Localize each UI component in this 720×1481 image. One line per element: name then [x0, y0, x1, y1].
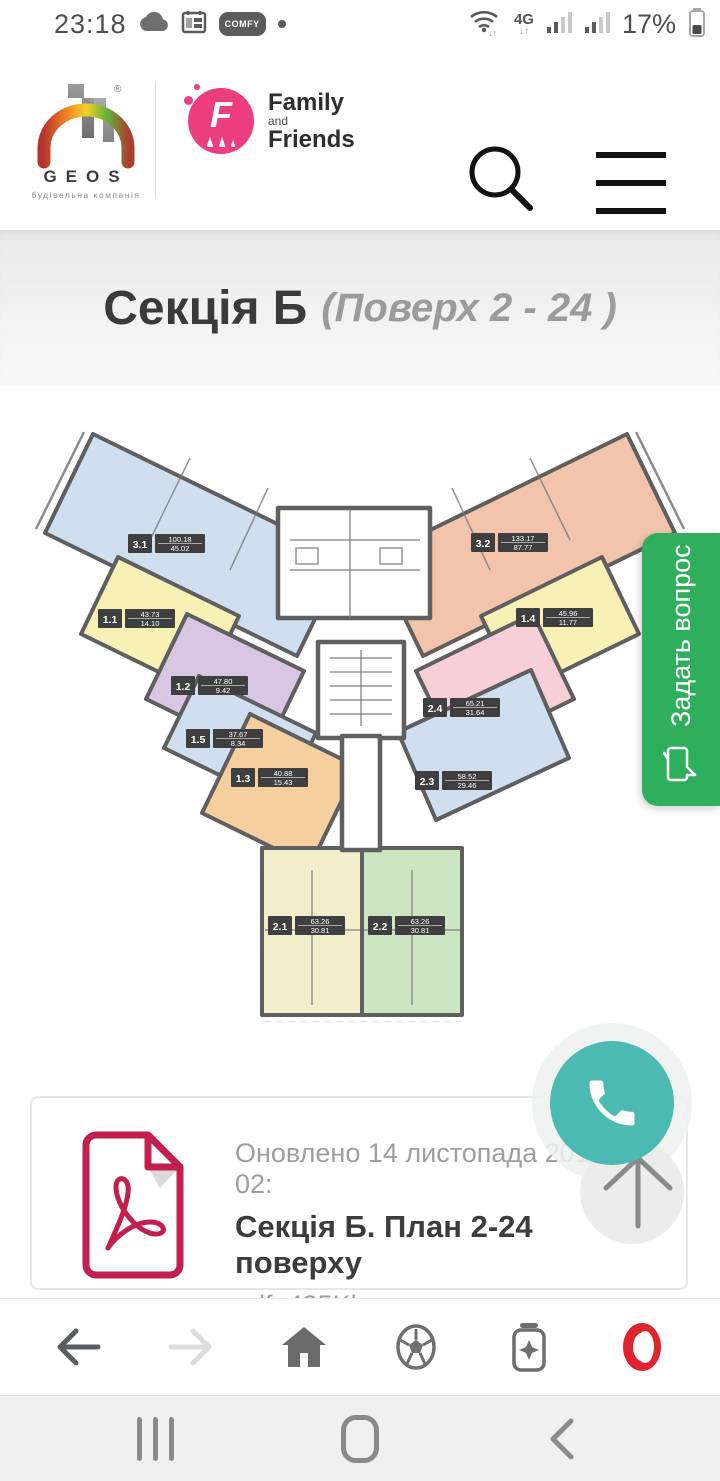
site-header: ® GEOS будівельна компанія F Family and … — [0, 48, 720, 230]
pdf-file-title[interactable]: Секція Б. План 2-24 поверху — [235, 1209, 635, 1281]
partner-name-line1: Family — [268, 90, 355, 115]
unit-label: 2.3 58.5229.46 — [415, 771, 492, 790]
svg-text:15.43: 15.43 — [274, 778, 293, 787]
geos-tagline: будівельна компанія — [32, 190, 141, 200]
partner-name-line2: Friends — [268, 127, 355, 152]
ask-question-button[interactable]: Задать вопрос — [642, 533, 720, 806]
browser-forward-button[interactable] — [163, 1319, 219, 1375]
svg-text:9.42: 9.42 — [216, 686, 231, 695]
core-elevator-block — [278, 508, 430, 618]
section-title-band: Секція Б (Поверх 2 - 24 ) — [0, 230, 720, 386]
browser-downloads-button[interactable] — [501, 1319, 557, 1375]
svg-text:40.88: 40.88 — [274, 769, 293, 778]
svg-text:3.1: 3.1 — [133, 539, 148, 551]
browser-back-button[interactable] — [50, 1319, 106, 1375]
svg-text:2.2: 2.2 — [373, 921, 388, 933]
page-subtitle: (Поверх 2 - 24 ) — [321, 286, 616, 331]
downloads-box-icon — [506, 1322, 552, 1372]
svg-text:14.10: 14.10 — [141, 619, 160, 628]
hamburger-icon — [596, 152, 666, 158]
back-chevron-icon — [544, 1414, 580, 1464]
svg-text:2.1: 2.1 — [273, 921, 288, 933]
svg-text:37.67: 37.67 — [229, 730, 248, 739]
svg-text:63.26: 63.26 — [311, 917, 330, 926]
android-home-button[interactable] — [341, 1415, 379, 1463]
geos-logo[interactable]: ® GEOS будівельна компанія — [30, 76, 150, 206]
svg-text:63.26: 63.26 — [411, 917, 430, 926]
comfy-notification-badge: COMFY — [219, 12, 266, 36]
svg-text:45.02: 45.02 — [171, 544, 190, 553]
battery-percent: 17% — [622, 9, 676, 40]
svg-text:8.34: 8.34 — [231, 739, 246, 748]
core-corridor — [342, 736, 380, 850]
floor-plan-image: 3.1 100.1845.02 1.1 43.7314.10 1.2 47.80… — [0, 430, 720, 1022]
opera-menu-button[interactable] — [614, 1319, 670, 1375]
signal-bars-icon-sim1 — [546, 9, 572, 40]
unit-label: 1.4 45.9611.77 — [516, 608, 593, 627]
svg-text:58.52: 58.52 — [458, 772, 477, 781]
search-button[interactable] — [462, 140, 540, 222]
page-title: Секція Б — [103, 281, 307, 336]
svg-text:65.21: 65.21 — [466, 699, 485, 708]
svg-text:100.18: 100.18 — [169, 535, 192, 544]
svg-text:45.96: 45.96 — [559, 609, 578, 618]
geos-reg-mark: ® — [114, 84, 122, 95]
svg-text:87.77: 87.77 — [514, 543, 533, 552]
browser-news-football-button[interactable] — [388, 1319, 444, 1375]
clock: 23:18 — [54, 9, 127, 40]
svg-text:1.3: 1.3 — [236, 773, 251, 785]
phone-icon — [582, 1073, 642, 1133]
back-arrow-icon — [52, 1325, 104, 1369]
chat-bubble-icon — [663, 745, 699, 783]
unit-label: 2.2 63.2630.81 — [368, 916, 445, 935]
svg-text:1.2: 1.2 — [176, 681, 191, 693]
browser-toolbar — [0, 1298, 720, 1395]
svg-text:3.2: 3.2 — [476, 538, 491, 550]
notification-dot-icon — [278, 20, 286, 28]
svg-text:31.64: 31.64 — [466, 708, 485, 717]
pdf-file-icon[interactable] — [78, 1130, 198, 1280]
svg-text:↓↑: ↓↑ — [488, 28, 497, 36]
opera-logo-icon — [619, 1322, 665, 1372]
battery-icon — [688, 7, 706, 42]
call-phone-fab[interactable] — [550, 1041, 674, 1165]
unit-label: 1.2 47.809.42 — [171, 676, 248, 695]
unit-label: 3.2 133.1787.77 — [471, 533, 548, 552]
svg-text:1.1: 1.1 — [103, 614, 118, 626]
hamburger-menu-button[interactable] — [596, 152, 666, 214]
signal-bars-icon-sim2 — [584, 9, 610, 40]
football-icon — [392, 1323, 440, 1371]
unit-label: 1.5 37.678.34 — [186, 729, 263, 748]
unit-label: 3.1 100.1845.02 — [128, 534, 205, 553]
unit-label: 2.4 65.2131.64 — [423, 698, 500, 717]
geos-wordmark: GEOS — [43, 167, 128, 186]
network-type-indicator: 4G↓↑ — [514, 12, 534, 37]
android-navigation-bar — [0, 1395, 720, 1481]
wifi-icon: ↓↑ — [468, 8, 502, 41]
home-icon — [280, 1325, 328, 1369]
svg-text:2.4: 2.4 — [428, 703, 443, 715]
family-friends-logo[interactable]: F Family and Friends — [188, 88, 355, 154]
svg-text:47.80: 47.80 — [214, 677, 233, 686]
header-divider — [155, 83, 156, 198]
unit-label: 1.3 40.8815.43 — [231, 768, 308, 787]
search-icon — [462, 140, 540, 222]
calendar-icon — [181, 10, 207, 39]
forward-arrow-icon — [165, 1325, 217, 1369]
unit-label: 2.1 63.2630.81 — [268, 916, 345, 935]
svg-text:43.73: 43.73 — [141, 610, 160, 619]
svg-text:2.3: 2.3 — [420, 776, 435, 788]
svg-text:30.81: 30.81 — [411, 926, 430, 935]
svg-text:30.81: 30.81 — [311, 926, 330, 935]
svg-text:11.77: 11.77 — [559, 618, 577, 627]
ask-question-label: Задать вопрос — [666, 544, 697, 727]
svg-text:1.4: 1.4 — [521, 613, 536, 625]
svg-text:29.46: 29.46 — [458, 781, 477, 790]
status-bar: 23:18 COMFY ↓↑ 4G↓↑ 17% — [0, 0, 720, 48]
unit-label: 1.1 43.7314.10 — [98, 609, 175, 628]
family-friends-emblem-icon: F — [188, 88, 254, 154]
android-back-button[interactable] — [544, 1414, 580, 1469]
svg-text:133.17: 133.17 — [512, 534, 535, 543]
browser-home-button[interactable] — [276, 1319, 332, 1375]
android-recents-button[interactable] — [137, 1417, 174, 1461]
svg-text:1.5: 1.5 — [191, 734, 206, 746]
cloud-icon — [139, 11, 169, 38]
